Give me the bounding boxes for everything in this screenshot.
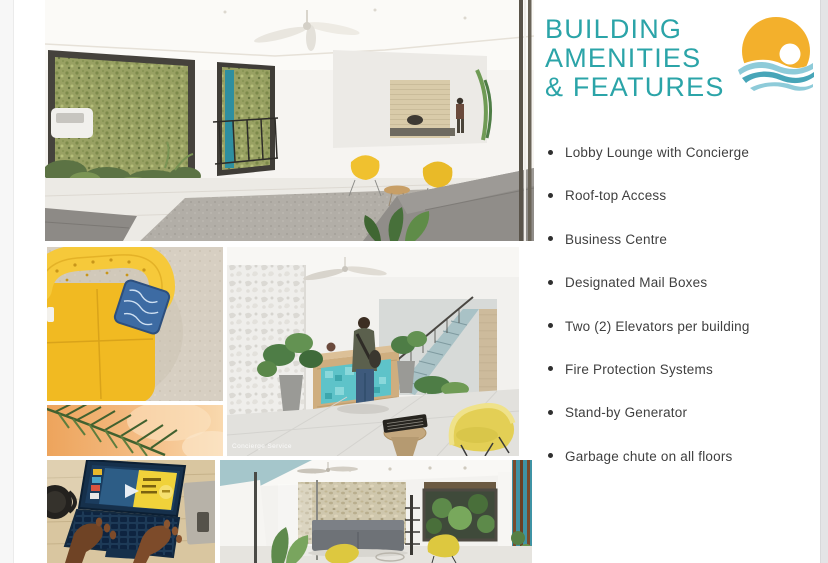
bullet-dot: [548, 280, 553, 285]
bullet-dot: [548, 410, 553, 415]
amenity-label: Business Centre: [565, 232, 667, 247]
gallery-image-concierge-desk: Concierge Service: [227, 247, 519, 456]
title-line-2: AMENITIES: [545, 44, 725, 73]
amenity-label: Fire Protection Systems: [565, 362, 713, 377]
bullet-dot: [548, 453, 553, 458]
amenity-label: Designated Mail Boxes: [565, 275, 707, 290]
page-edge-strip-right: [820, 0, 828, 563]
amenity-item: Fire Protection Systems: [545, 362, 795, 405]
bullet-dot: [548, 150, 553, 155]
bullet-dot: [548, 366, 553, 371]
gallery-image-lobby-seating: [220, 460, 532, 563]
bullet-dot: [548, 323, 553, 328]
title-line-3: & FEATURES: [545, 73, 725, 102]
amenity-item: Designated Mail Boxes: [545, 275, 795, 318]
brochure-page: Concierge Service: [0, 0, 828, 563]
image-caption: Concierge Service: [232, 443, 292, 450]
page-edge-strip-left: [0, 0, 14, 563]
gallery-image-business-centre-laptop: [47, 460, 215, 563]
amenity-label: Stand-by Generator: [565, 405, 687, 420]
bullet-dot: [548, 236, 553, 241]
amenity-label: Lobby Lounge with Concierge: [565, 145, 749, 160]
gallery-image-palm-leaf: [47, 405, 223, 456]
bullet-dot: [548, 193, 553, 198]
amenity-item: Business Centre: [545, 232, 795, 275]
amenity-label: Two (2) Elevators per building: [565, 319, 750, 334]
gallery-image-lobby-lounge: [45, 0, 534, 241]
amenities-list: Lobby Lounge with Concierge Roof-top Acc…: [545, 145, 795, 492]
amenity-label: Roof-top Access: [565, 188, 666, 203]
amenity-item: Garbage chute on all floors: [545, 449, 795, 492]
amenity-item: Roof-top Access: [545, 188, 795, 231]
title-line-1: BUILDING: [545, 15, 725, 44]
gallery-image-yellow-sofa: [47, 247, 223, 401]
amenity-item: Lobby Lounge with Concierge: [545, 145, 795, 188]
page-title: BUILDING AMENITIES & FEATURES: [545, 15, 725, 102]
amenity-label: Garbage chute on all floors: [565, 449, 733, 464]
amenity-item: Two (2) Elevators per building: [545, 319, 795, 362]
amenity-item: Stand-by Generator: [545, 405, 795, 448]
sun-waves-logo-icon: [736, 14, 816, 98]
